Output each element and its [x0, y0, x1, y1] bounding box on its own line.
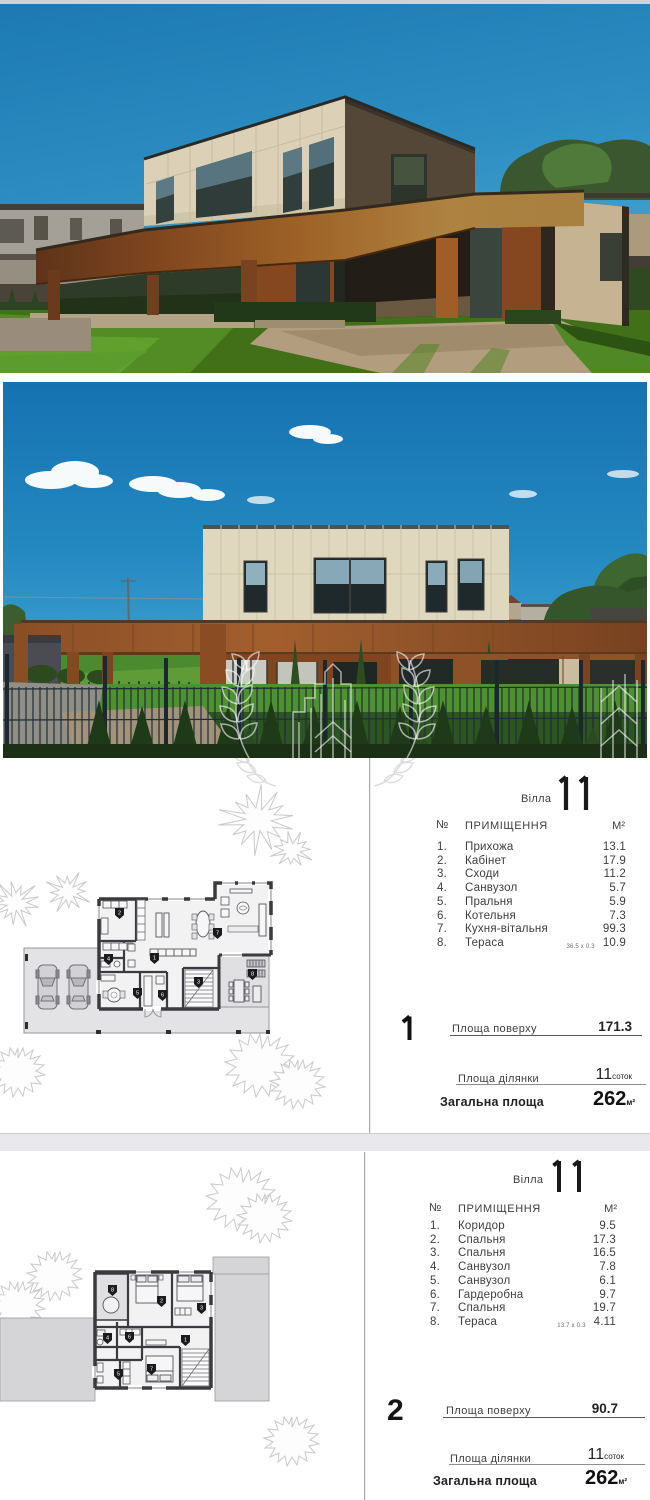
svg-text:7: 7 — [150, 1367, 153, 1373]
svg-text:3: 3 — [200, 1306, 203, 1312]
svg-text:8: 8 — [251, 972, 254, 978]
svg-text:3: 3 — [197, 980, 200, 986]
svg-text:8: 8 — [111, 1288, 114, 1294]
svg-text:4: 4 — [107, 957, 110, 963]
svg-text:2: 2 — [160, 1299, 163, 1305]
svg-text:6: 6 — [128, 1335, 131, 1341]
svg-text:7: 7 — [216, 931, 219, 937]
svg-text:1: 1 — [184, 1338, 187, 1344]
svg-text:4: 4 — [106, 1336, 109, 1342]
svg-text:5: 5 — [117, 1372, 120, 1378]
svg-text:6: 6 — [161, 993, 164, 999]
svg-text:1: 1 — [153, 956, 156, 962]
svg-text:2: 2 — [118, 911, 121, 917]
svg-text:5: 5 — [136, 991, 139, 997]
